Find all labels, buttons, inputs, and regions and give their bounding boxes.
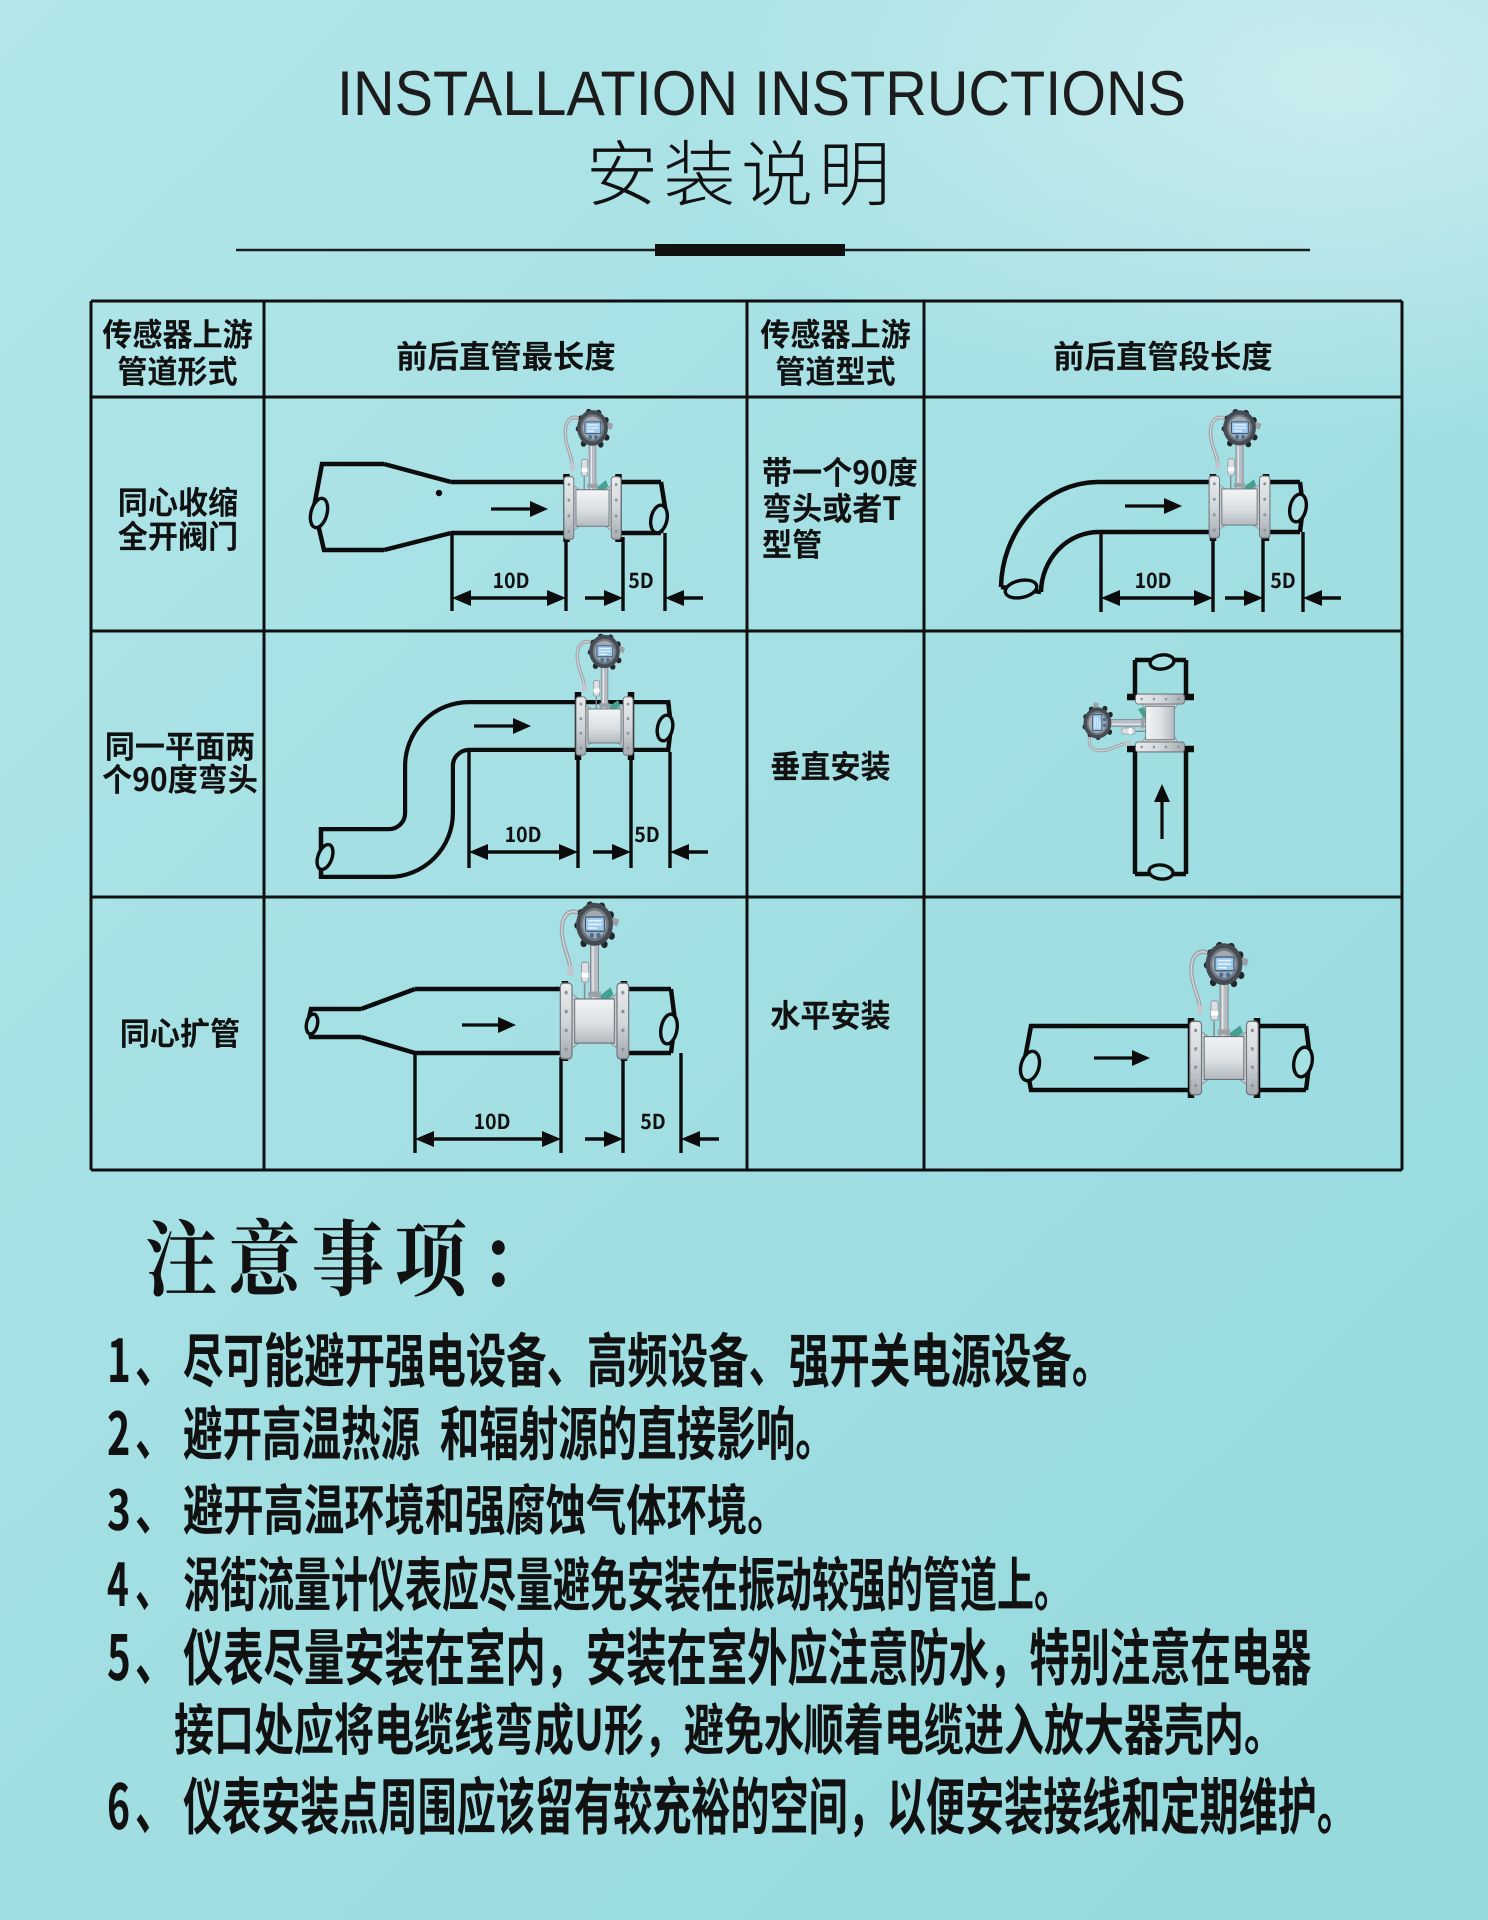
svg-text:INSTALLATION INSTRUCTIONS: INSTALLATION INSTRUCTIONS — [337, 59, 1186, 129]
